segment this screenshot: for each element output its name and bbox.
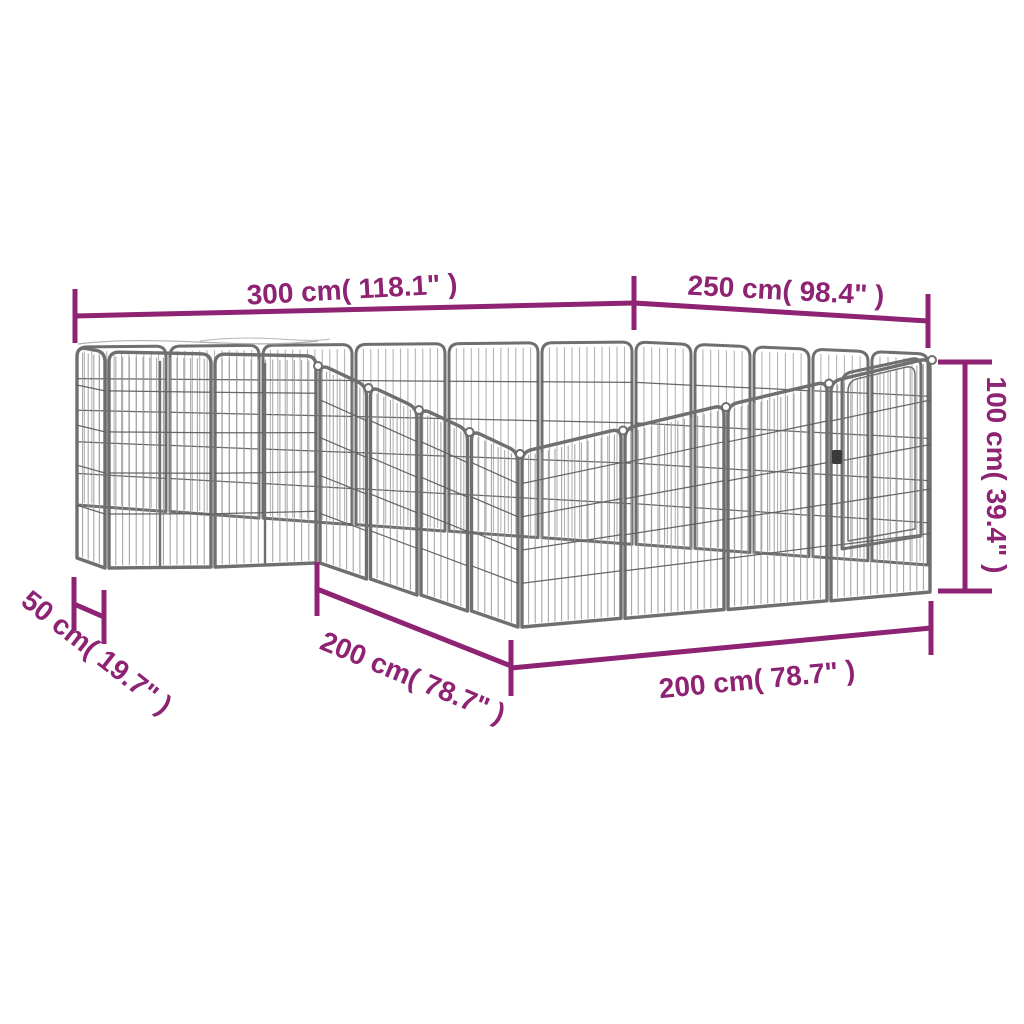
playpen-dimension-diagram: 300 cm( 118.1" ) 250 cm( 98.4" ) 100 cm(… <box>0 0 1024 1024</box>
dimension-front-bottom: 200 cm( 78.7" ) <box>511 601 931 704</box>
dim-line <box>634 303 928 321</box>
dimension-height: 100 cm( 39.4" ) <box>938 362 1012 591</box>
dim-line <box>74 604 104 617</box>
dim-line <box>75 303 634 316</box>
diagram-canvas: 300 cm( 118.1" ) 250 cm( 98.4" ) 100 cm(… <box>0 0 1024 1024</box>
dim-front-left-label: 200 cm( 78.7" ) <box>316 625 510 729</box>
left-extension-side-panel <box>77 348 105 568</box>
dim-back-right-label: 250 cm( 98.4" ) <box>687 270 885 311</box>
dimension-back-right: 250 cm( 98.4" ) <box>634 270 928 348</box>
dimension-front-left: 200 cm( 78.7" ) <box>316 562 511 729</box>
dim-line <box>511 628 931 668</box>
dim-front-bottom-label: 200 cm( 78.7" ) <box>658 654 857 704</box>
playpen-drawing <box>77 338 936 627</box>
front-left-wall-panels <box>314 362 524 627</box>
dim-side-depth-label: 50 cm( 19.7" ) <box>16 584 178 720</box>
dim-height-label: 100 cm( 39.4" ) <box>981 377 1012 574</box>
dimension-side-depth: 50 cm( 19.7" ) <box>16 577 178 720</box>
dimension-back-left: 300 cm( 118.1" ) <box>75 268 634 343</box>
dim-back-left-label: 300 cm( 118.1" ) <box>246 268 458 311</box>
door-latch-icon <box>832 450 842 464</box>
